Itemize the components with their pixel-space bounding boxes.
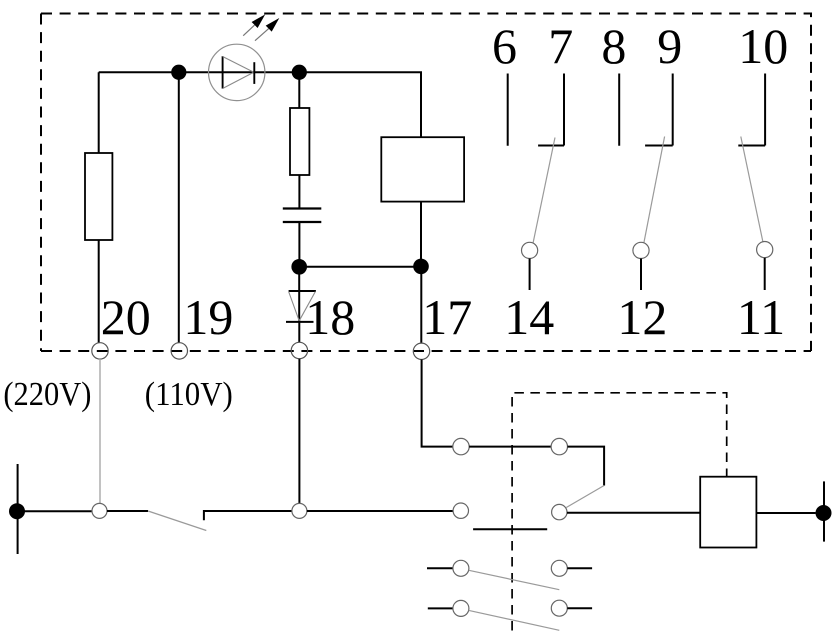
- svg-text:(110V): (110V): [145, 376, 233, 413]
- svg-text:11: 11: [737, 289, 785, 345]
- svg-text:17: 17: [422, 289, 472, 345]
- svg-text:19: 19: [183, 289, 233, 345]
- svg-text:20: 20: [101, 289, 151, 345]
- svg-text:10: 10: [738, 18, 788, 74]
- svg-text:(220V): (220V): [3, 376, 91, 413]
- svg-text:9: 9: [657, 18, 682, 74]
- svg-text:18: 18: [305, 289, 355, 345]
- svg-text:14: 14: [504, 289, 554, 345]
- svg-text:7: 7: [548, 18, 573, 74]
- svg-text:12: 12: [617, 289, 667, 345]
- svg-text:6: 6: [492, 18, 517, 74]
- svg-text:8: 8: [601, 18, 626, 74]
